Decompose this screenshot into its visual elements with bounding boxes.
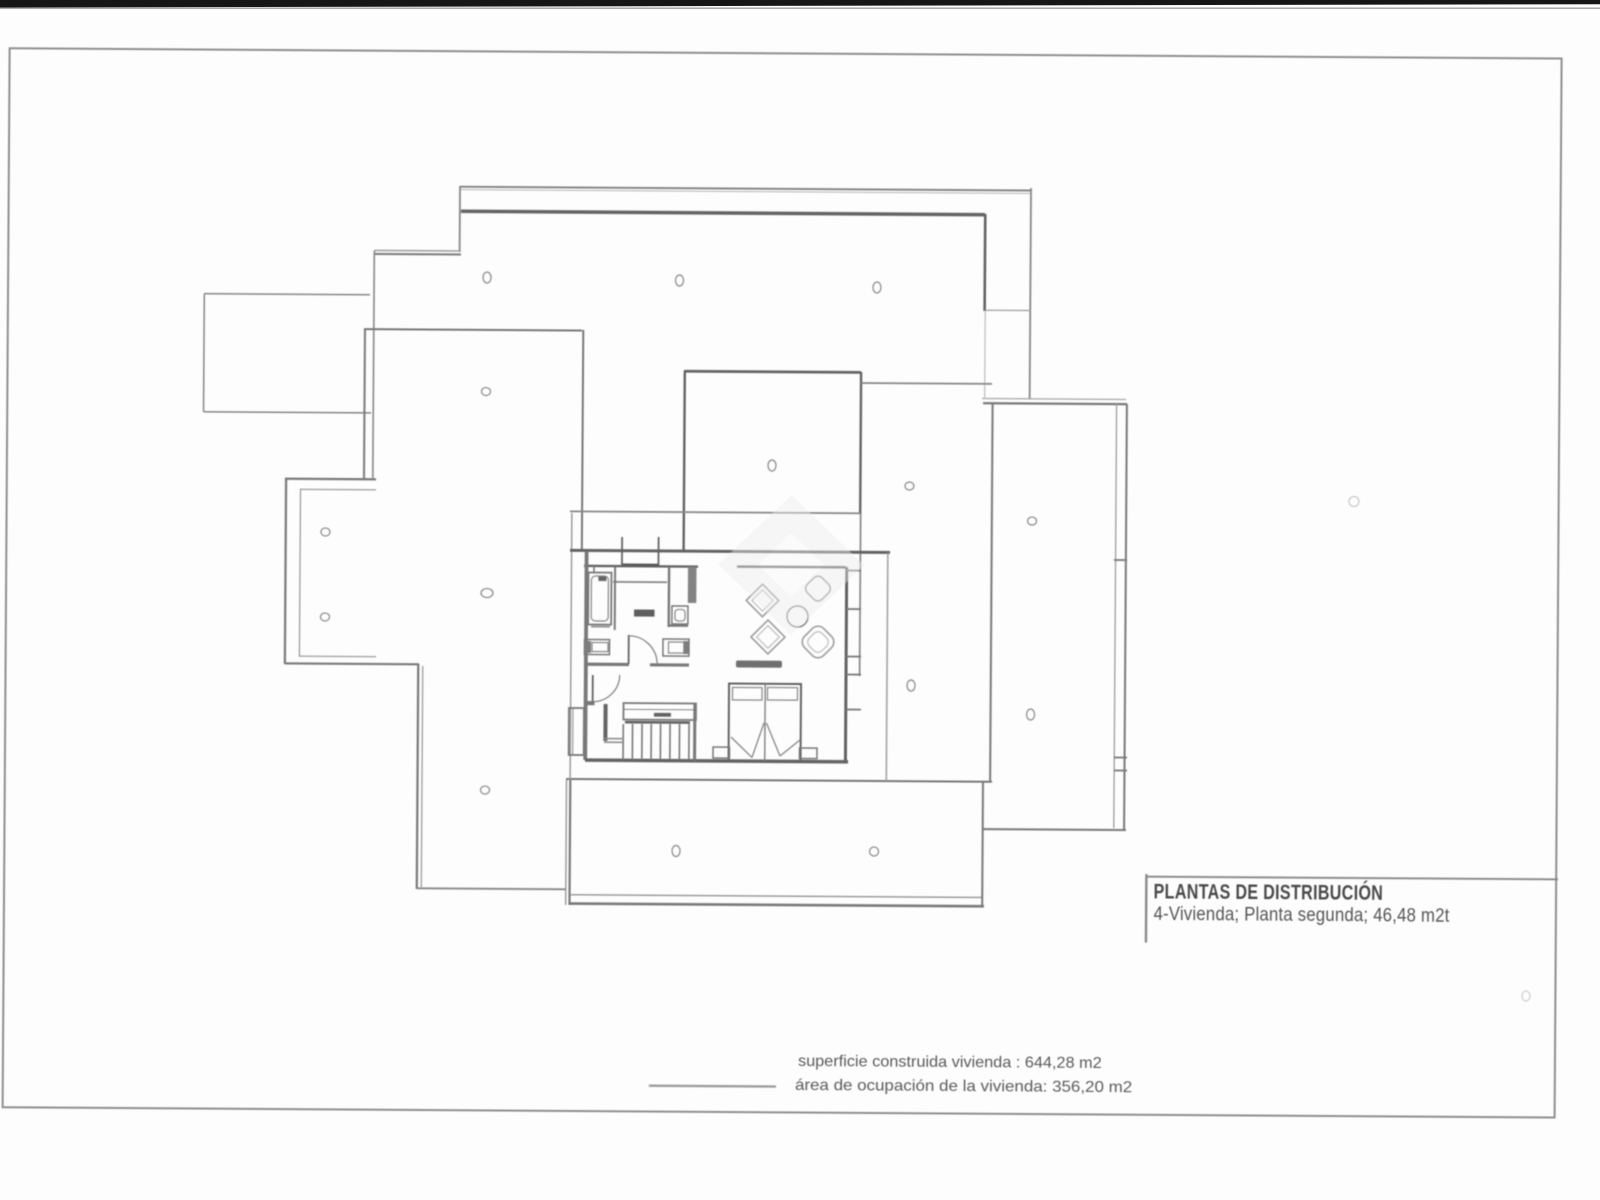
- svg-text:4-Vivienda; Planta segunda; 46: 4-Vivienda; Planta segunda; 46,48 m2t: [1153, 903, 1449, 926]
- svg-text:superficie construida vivienda: superficie construida vivienda : 644,28 …: [798, 1053, 1102, 1072]
- svg-text:PLANTAS DE DISTRIBUCIÓN: PLANTAS DE DISTRIBUCIÓN: [1153, 879, 1383, 905]
- svg-text:área de ocupación de la vivien: área de ocupación de la vivienda: 356,20…: [795, 1076, 1132, 1096]
